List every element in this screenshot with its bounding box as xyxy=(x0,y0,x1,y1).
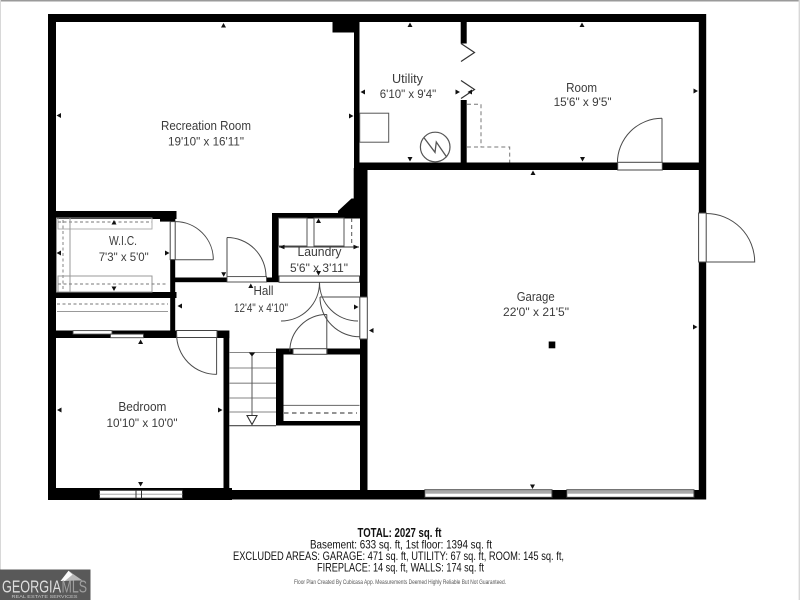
svg-text:Garage: Garage xyxy=(517,290,555,304)
svg-text:Utility: Utility xyxy=(392,72,424,86)
svg-text:Bedroom: Bedroom xyxy=(118,400,166,414)
svg-text:15'6" x 9'5": 15'6" x 9'5" xyxy=(554,95,612,109)
svg-text:FIREPLACE: 14 sq. ft, WALLS: 1: FIREPLACE: 14 sq. ft, WALLS: 174 sq. ft xyxy=(317,561,485,575)
svg-text:REAL ESTATE SERVICES: REAL ESTATE SERVICES xyxy=(12,594,78,599)
svg-text:Hall: Hall xyxy=(254,284,274,298)
svg-text:12'4" x 4'10": 12'4" x 4'10" xyxy=(234,301,288,315)
svg-text:W.I.C.: W.I.C. xyxy=(109,234,137,248)
svg-text:10'10" x 10'0": 10'10" x 10'0" xyxy=(107,416,178,430)
svg-text:Floor Plan Created By Cubicasa: Floor Plan Created By Cubicasa App. Meas… xyxy=(294,580,506,586)
svg-text:19'10" x 16'11": 19'10" x 16'11" xyxy=(168,135,244,149)
svg-text:Room: Room xyxy=(566,81,597,95)
svg-text:22'0" x 21'5": 22'0" x 21'5" xyxy=(503,305,569,319)
svg-text:Recreation Room: Recreation Room xyxy=(161,119,251,133)
svg-text:7'3" x 5'0": 7'3" x 5'0" xyxy=(99,250,149,264)
svg-text:6'10" x 9'4": 6'10" x 9'4" xyxy=(380,87,437,101)
